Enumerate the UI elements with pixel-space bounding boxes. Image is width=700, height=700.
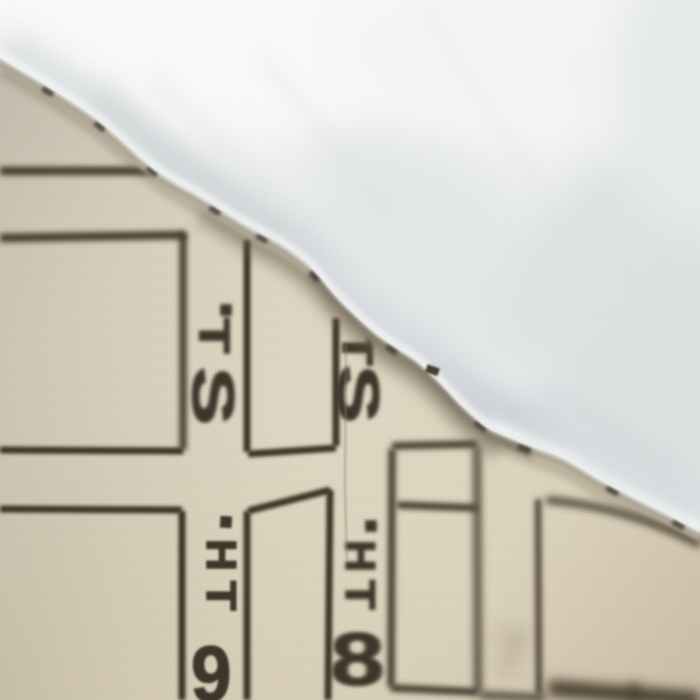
svg-text:7: 7	[492, 619, 531, 684]
svg-text:T: T	[198, 581, 245, 611]
svg-text:H: H	[197, 539, 244, 571]
svg-text:S: S	[325, 365, 390, 423]
svg-text:S: S	[180, 367, 245, 425]
svg-text:H: H	[336, 540, 383, 572]
svg-text:T: T	[191, 318, 239, 353]
svg-text:9: 9	[191, 630, 231, 700]
svg-text:8: 8	[330, 619, 384, 700]
svg-text:T: T	[337, 580, 384, 610]
